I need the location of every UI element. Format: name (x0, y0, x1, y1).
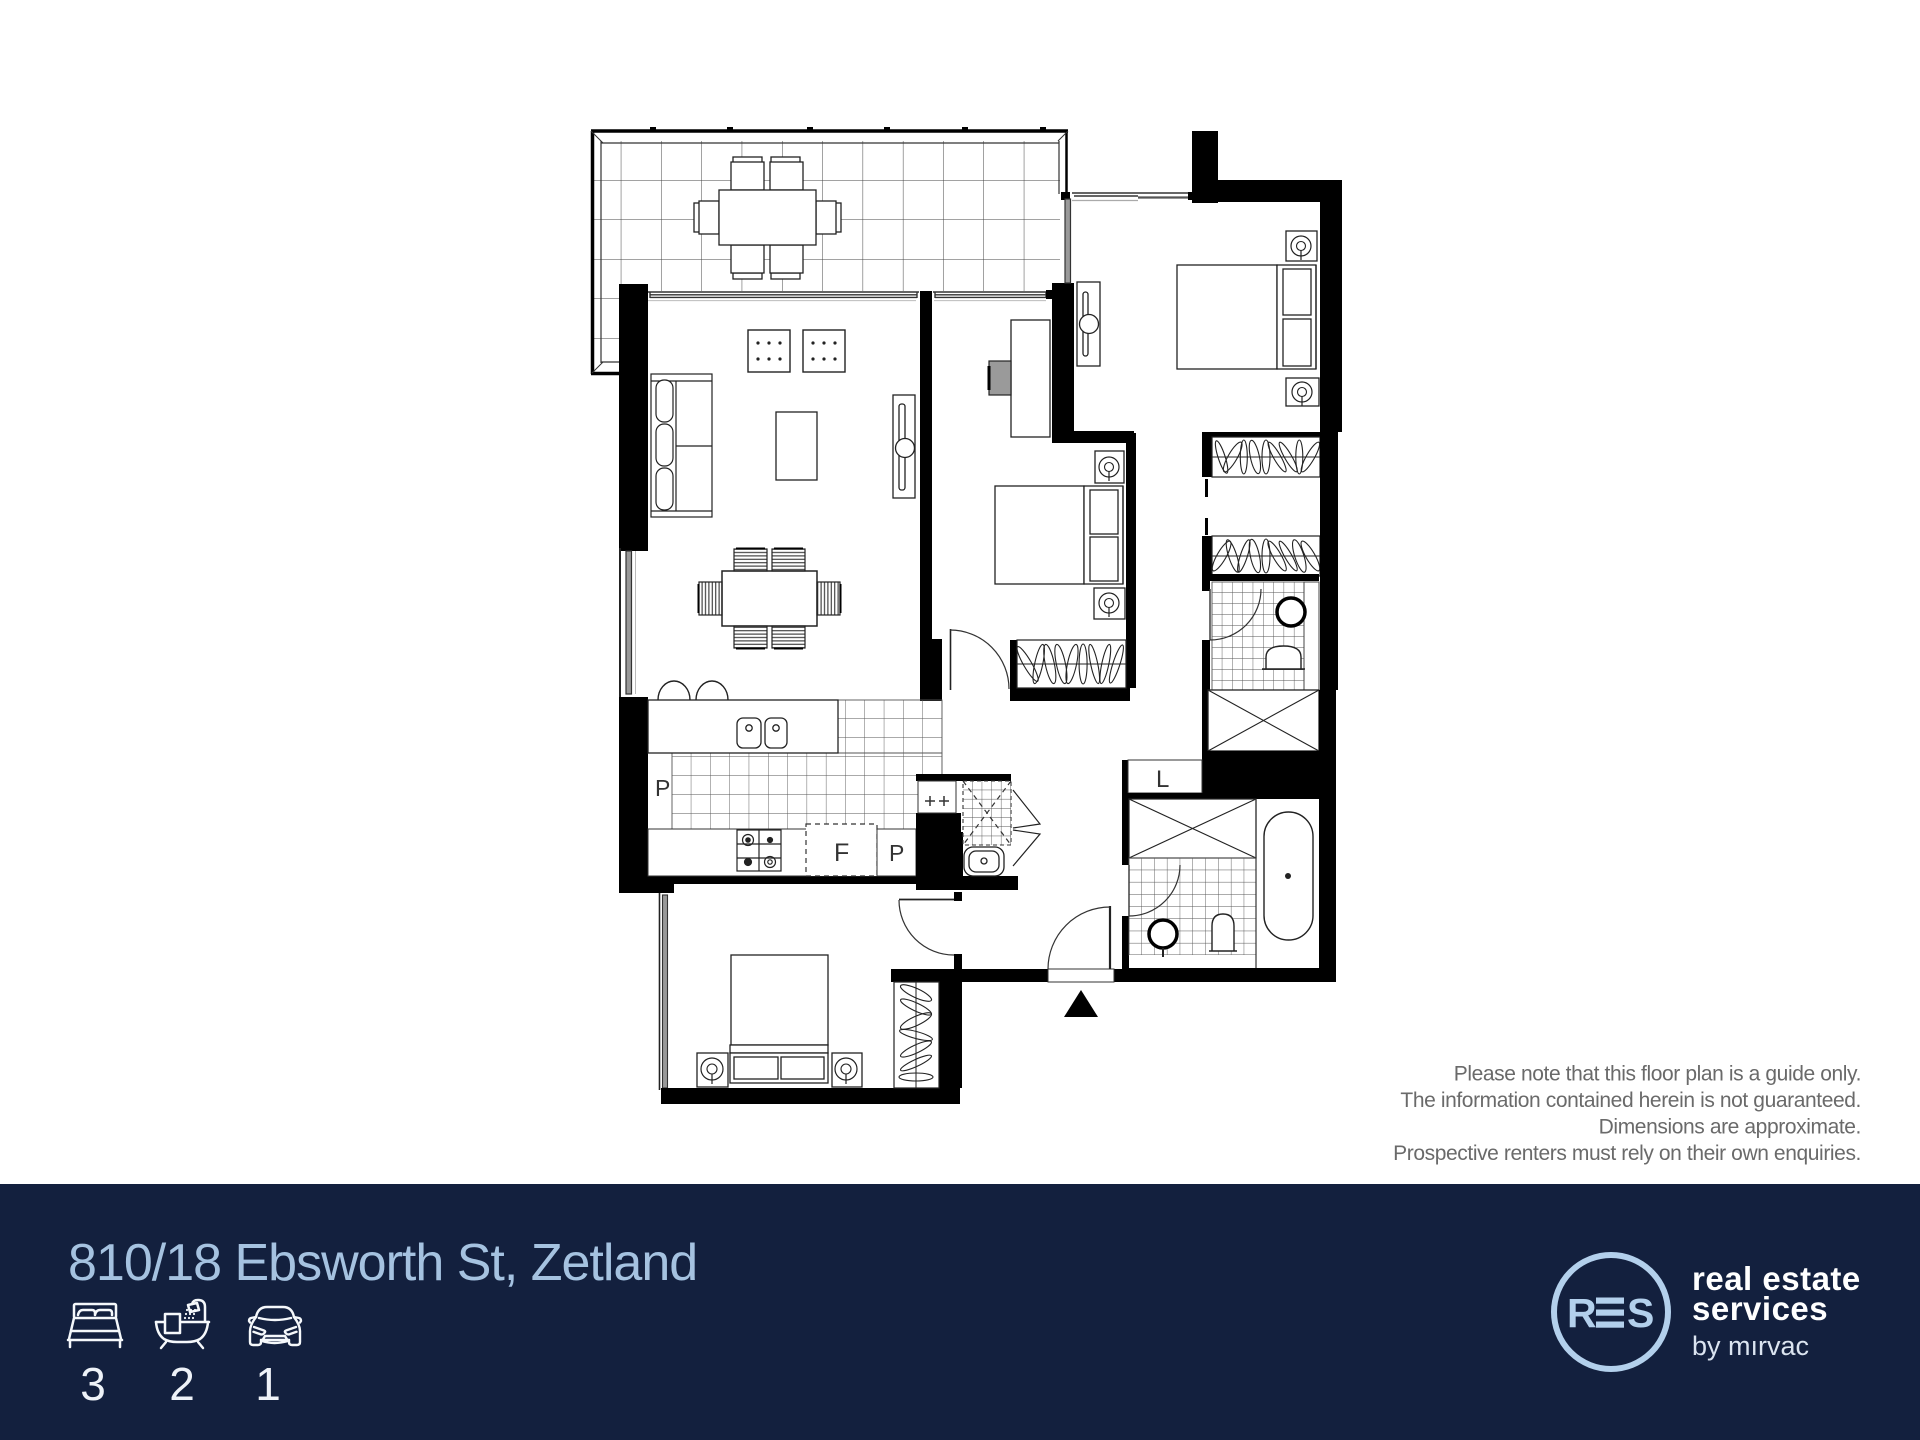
svg-text:1: 1 (255, 1358, 281, 1410)
svg-text:services: services (1692, 1290, 1828, 1327)
svg-text:Prospective renters must rely: Prospective renters must rely on their o… (1393, 1142, 1861, 1165)
svg-text:F: F (834, 839, 849, 867)
svg-text:by mırvac: by mırvac (1692, 1331, 1809, 1361)
svg-text:810/18 Ebsworth St, Zetland: 810/18 Ebsworth St, Zetland (68, 1234, 697, 1292)
svg-text:P: P (655, 775, 670, 801)
svg-text:2: 2 (169, 1358, 195, 1410)
svg-text:R: R (1567, 1290, 1597, 1336)
svg-text:Dimensions are approximate.: Dimensions are approximate. (1599, 1116, 1861, 1139)
svg-text:The information contained here: The information contained herein is not … (1400, 1089, 1861, 1112)
svg-text:3: 3 (80, 1358, 106, 1410)
svg-text:Please note that this floor pl: Please note that this floor plan is a gu… (1454, 1063, 1861, 1086)
svg-text:L: L (1156, 766, 1169, 793)
svg-text:P: P (889, 840, 904, 866)
svg-text:S: S (1627, 1290, 1654, 1336)
